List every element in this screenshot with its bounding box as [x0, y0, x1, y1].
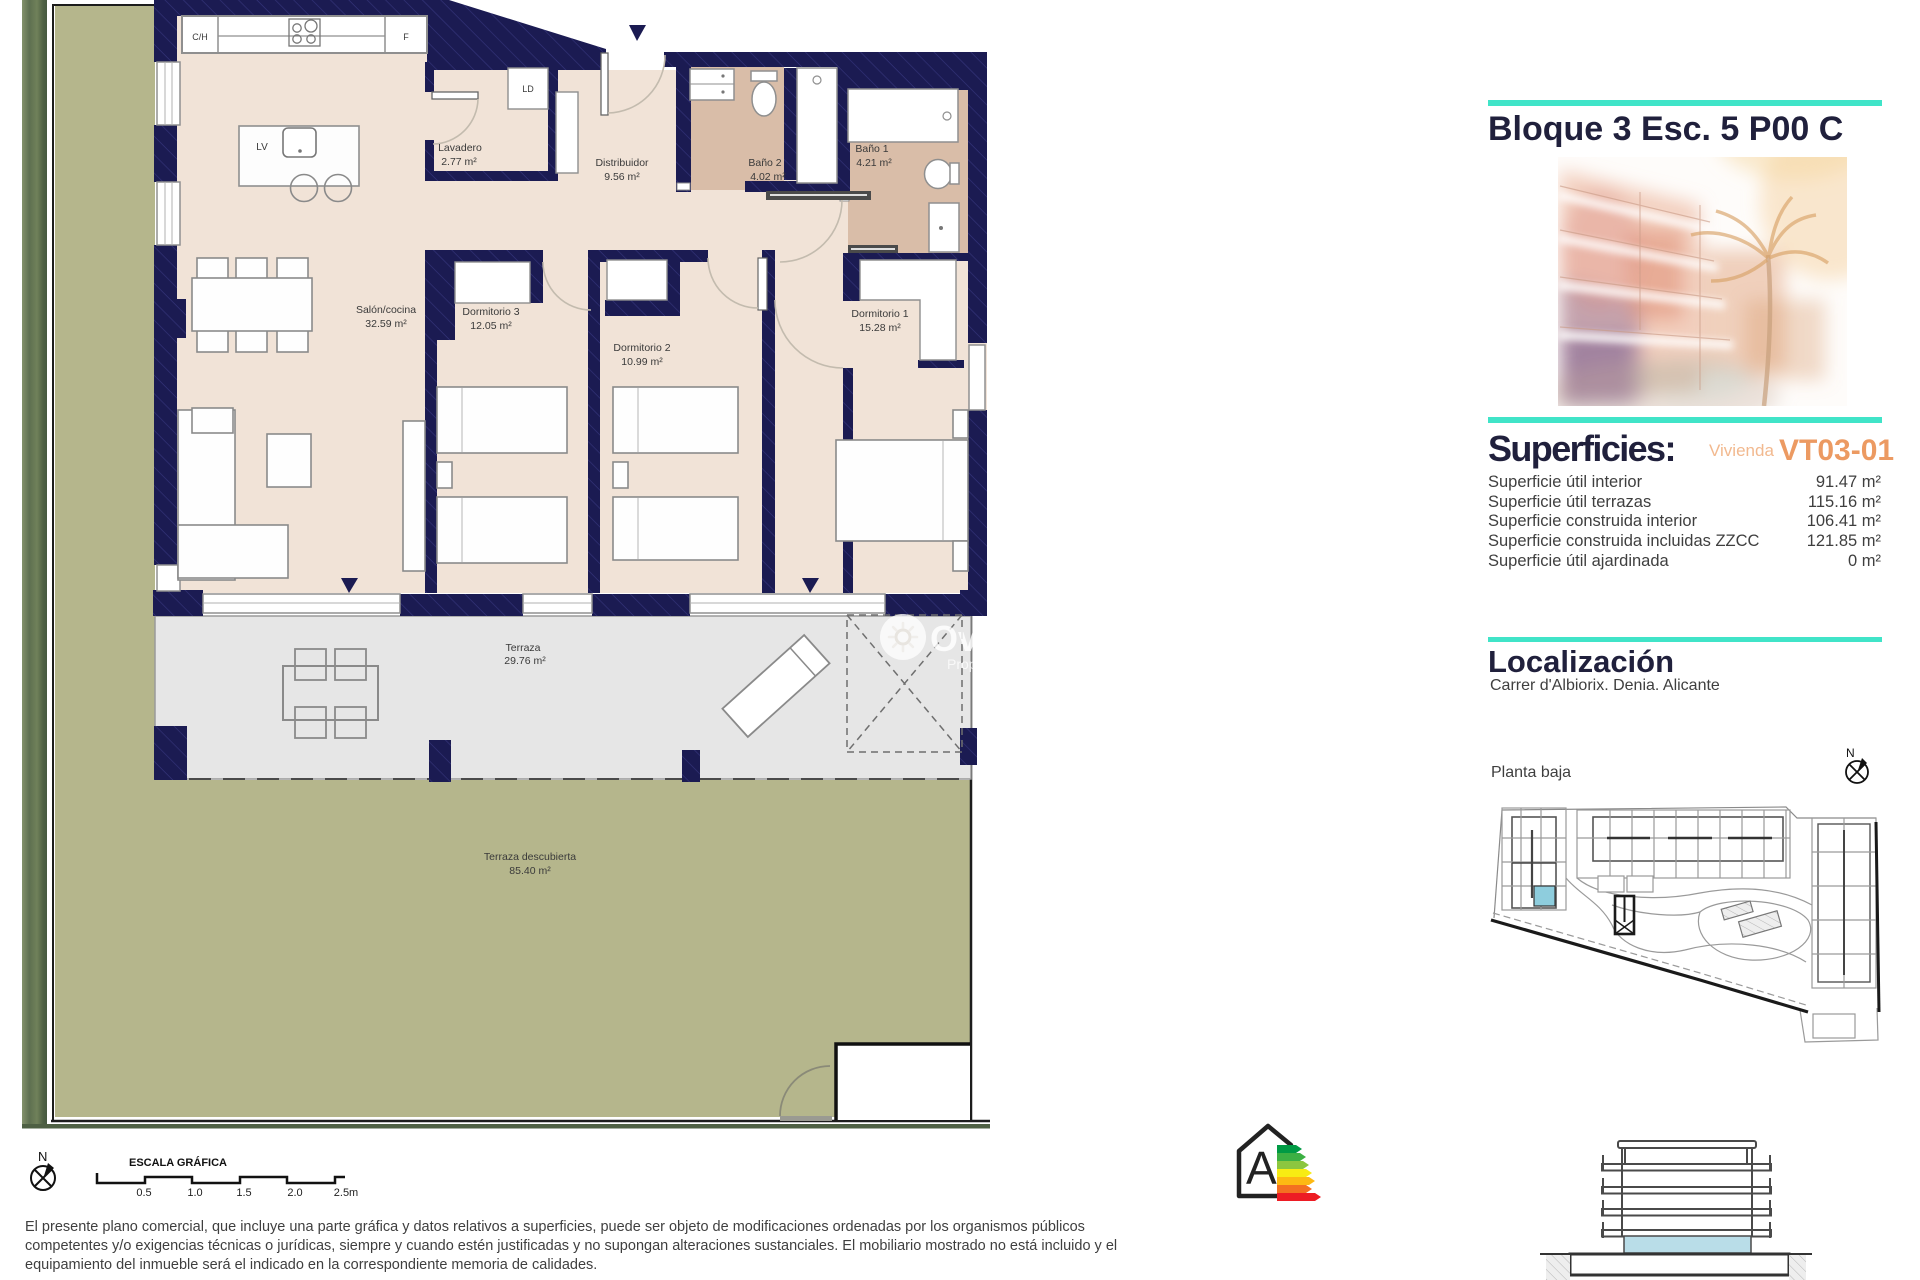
svg-text:Localización: Localización: [1488, 644, 1674, 679]
svg-text:Superficie construida incluida: Superficie construida incluidas ZZCC: [1488, 532, 1760, 550]
svg-text:10.99 m²: 10.99 m²: [621, 356, 663, 368]
svg-text:Terraza: Terraza: [505, 642, 540, 654]
svg-text:Propert: Propert: [947, 656, 993, 672]
svg-text:Superficie útil interior: Superficie útil interior: [1488, 473, 1643, 491]
svg-text:Lavadero: Lavadero: [438, 142, 482, 154]
svg-text:32.59 m²: 32.59 m²: [365, 318, 407, 330]
svg-text:A: A: [1246, 1142, 1277, 1194]
svg-text:Superficie útil terrazas: Superficie útil terrazas: [1488, 493, 1651, 511]
svg-text:0.5: 0.5: [136, 1187, 151, 1199]
svg-text:1.0: 1.0: [187, 1187, 202, 1199]
svg-text:LD: LD: [522, 84, 534, 94]
svg-text:9.56 m²: 9.56 m²: [604, 171, 640, 183]
svg-text:4.21 m²: 4.21 m²: [856, 157, 892, 169]
svg-text:Dormitorio 3: Dormitorio 3: [462, 306, 519, 318]
svg-text:4.02 m²: 4.02 m²: [750, 171, 786, 183]
svg-text:29.76 m²: 29.76 m²: [504, 655, 546, 667]
svg-text:115.16 m²: 115.16 m²: [1808, 493, 1882, 511]
svg-text:Dormitorio 1: Dormitorio 1: [851, 308, 908, 320]
svg-text:ESCALA GRÁFICA: ESCALA GRÁFICA: [129, 1156, 227, 1169]
svg-text:LV: LV: [256, 142, 268, 153]
svg-text:2.0: 2.0: [287, 1187, 302, 1199]
svg-text:Superficie construida interior: Superficie construida interior: [1488, 512, 1698, 530]
svg-text:12.05 m²: 12.05 m²: [470, 320, 512, 332]
svg-text:Salón/cocina: Salón/cocina: [356, 304, 416, 316]
svg-text:121.85 m²: 121.85 m²: [1807, 532, 1882, 550]
svg-text:El presente plano comercial, q: El presente plano comercial, que incluye…: [25, 1219, 1085, 1235]
svg-text:Carrer d'Albiorix. Denia. Alic: Carrer d'Albiorix. Denia. Alicante: [1490, 677, 1720, 694]
svg-text:Vivienda: Vivienda: [1709, 441, 1774, 460]
svg-text:85.40 m²: 85.40 m²: [509, 865, 551, 877]
svg-text:0 m²: 0 m²: [1848, 552, 1882, 570]
svg-text:Dormitorio 2: Dormitorio 2: [613, 342, 670, 354]
svg-text:Bloque 3 Esc. 5 P00 C: Bloque 3 Esc. 5 P00 C: [1488, 110, 1843, 148]
svg-text:106.41 m²: 106.41 m²: [1807, 512, 1882, 530]
svg-text:1.5: 1.5: [236, 1187, 251, 1199]
svg-text:F: F: [403, 32, 409, 42]
svg-text:Terraza descubierta: Terraza descubierta: [484, 851, 576, 863]
svg-text:2.5m: 2.5m: [334, 1187, 358, 1199]
svg-text:Superficies:: Superficies:: [1488, 428, 1675, 469]
svg-text:Distribuidor: Distribuidor: [595, 157, 649, 169]
svg-text:VT03-01: VT03-01: [1779, 434, 1894, 467]
svg-text:N: N: [38, 1149, 47, 1164]
svg-text:2.77 m²: 2.77 m²: [441, 156, 477, 168]
svg-text:Superficie útil ajardinada: Superficie útil ajardinada: [1488, 552, 1670, 570]
svg-text:Ove: Ove: [930, 618, 998, 659]
svg-text:N: N: [1846, 746, 1855, 760]
svg-text:Planta baja: Planta baja: [1491, 764, 1571, 781]
svg-text:C/H: C/H: [192, 32, 208, 42]
svg-text:91.47 m²: 91.47 m²: [1816, 473, 1882, 491]
svg-text:Baño 2: Baño 2: [748, 157, 781, 169]
svg-text:equipamiento del inmueble será: equipamiento del inmueble será el indica…: [25, 1257, 597, 1273]
svg-text:Baño 1: Baño 1: [855, 143, 888, 155]
svg-text:competentes y/o exigencias téc: competentes y/o exigencias técnicas o ju…: [25, 1238, 1117, 1254]
svg-text:15.28 m²: 15.28 m²: [859, 322, 901, 334]
